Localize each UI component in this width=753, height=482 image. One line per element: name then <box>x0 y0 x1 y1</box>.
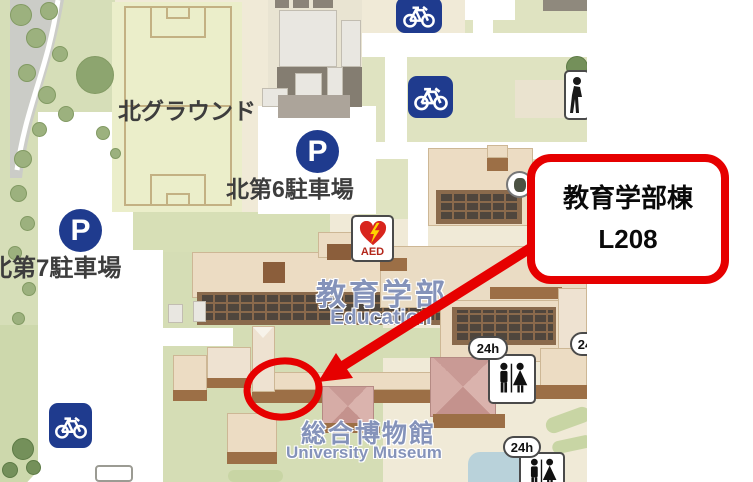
building-shadow <box>487 158 508 171</box>
field-goalbox-bottom <box>166 193 190 206</box>
parking7-label: 北第7駐車場 <box>0 248 121 283</box>
hours-text: 24h <box>578 337 587 352</box>
parking-icon: P <box>296 130 339 173</box>
bicycle-parking-icon <box>408 76 453 118</box>
bicycle-glyph <box>412 83 450 111</box>
building-outline <box>95 465 133 482</box>
tree-icon <box>32 122 47 137</box>
beige-patch <box>515 80 571 118</box>
building-shadow <box>433 414 505 428</box>
building-shadow <box>207 378 251 388</box>
bicycle-parking-icon <box>396 0 442 33</box>
green-area <box>112 212 330 252</box>
restroom-figures-icon <box>494 361 530 397</box>
bicycle-parking-icon <box>49 403 92 448</box>
tree-icon <box>96 126 110 140</box>
hours-text: 24h <box>477 341 499 356</box>
tree-icon <box>18 64 36 82</box>
aed-label: AED <box>361 247 384 258</box>
gable-mark <box>253 327 273 338</box>
campus-map: 北グラウンド 北第6駐車場 北第7駐車場 教育学部 Education 総合博物… <box>0 0 587 482</box>
building-block <box>279 10 337 67</box>
building-block <box>168 304 183 323</box>
aed-icon: AED <box>351 215 394 262</box>
callout-room-number: L208 <box>598 224 657 255</box>
tree-icon <box>52 46 68 62</box>
road <box>408 148 428 256</box>
tree-icon <box>12 438 34 460</box>
parking-letter: P <box>307 135 327 169</box>
screenshot-canvas: 北グラウンド 北第6駐車場 北第7駐車場 教育学部 Education 総合博物… <box>0 0 753 482</box>
museum-label-en: University Museum <box>286 443 442 463</box>
education-building-windows <box>436 190 522 224</box>
road <box>465 0 515 20</box>
tree-icon <box>2 462 18 478</box>
callout-building-name: 教育学部棟 <box>563 178 693 215</box>
hours-bubble-partial: 24h <box>570 332 587 356</box>
hours-bubble: 24h <box>468 336 508 360</box>
field-goalbox-top <box>166 6 190 19</box>
marker-glyph <box>514 178 526 192</box>
building-block <box>173 355 207 394</box>
building-block <box>278 95 350 118</box>
road <box>385 33 407 142</box>
restroom-figures-icon <box>525 457 559 482</box>
tree-icon <box>10 4 32 26</box>
aed-heart-icon <box>358 221 388 247</box>
tree-icon <box>26 460 41 475</box>
toilet-sign <box>488 354 536 404</box>
building-block <box>275 0 289 8</box>
education-label-en: Education <box>330 306 432 330</box>
shrub <box>544 405 587 436</box>
tree-icon <box>14 150 32 168</box>
building-shadow <box>490 287 562 299</box>
building-shadow <box>227 452 277 464</box>
building-shadow <box>173 390 207 401</box>
tree-icon <box>10 185 27 202</box>
tree-icon <box>22 282 36 296</box>
tree-icon <box>76 56 114 94</box>
road <box>100 328 233 346</box>
bicycle-glyph <box>400 2 438 28</box>
bicycle-glyph <box>53 412 89 440</box>
room-callout-box: 教育学部棟 L208 <box>527 154 729 284</box>
shrub <box>228 470 283 482</box>
walking-person-icon <box>568 75 586 115</box>
parking6-label: 北第6駐車場 <box>226 170 354 204</box>
hours-text: 24h <box>511 440 533 455</box>
building-block <box>543 0 587 11</box>
tree-icon <box>26 28 46 48</box>
toilet-24h-icon: 24h <box>468 336 540 406</box>
road <box>133 250 163 482</box>
toilet-24h-icon: 24h <box>503 436 569 482</box>
building-block <box>207 347 251 382</box>
parking-icon: P <box>59 209 102 252</box>
tree-icon <box>58 106 74 122</box>
building-block <box>293 0 309 8</box>
building-block <box>487 145 508 158</box>
tree-icon <box>40 2 58 20</box>
building-block <box>263 262 285 283</box>
building-block <box>193 301 206 322</box>
road <box>473 18 493 56</box>
tree-icon <box>12 312 25 325</box>
hours-bubble: 24h <box>503 436 541 458</box>
tree-icon <box>20 216 35 231</box>
building-block <box>327 244 351 260</box>
parking-letter: P <box>70 214 90 248</box>
north-ground-label: 北グラウンド <box>118 92 256 126</box>
building-block <box>313 0 333 8</box>
monument-sign <box>564 70 587 120</box>
tree-icon <box>38 86 56 104</box>
tree-icon <box>110 148 121 159</box>
building-block <box>341 20 361 67</box>
building-block <box>227 413 277 455</box>
